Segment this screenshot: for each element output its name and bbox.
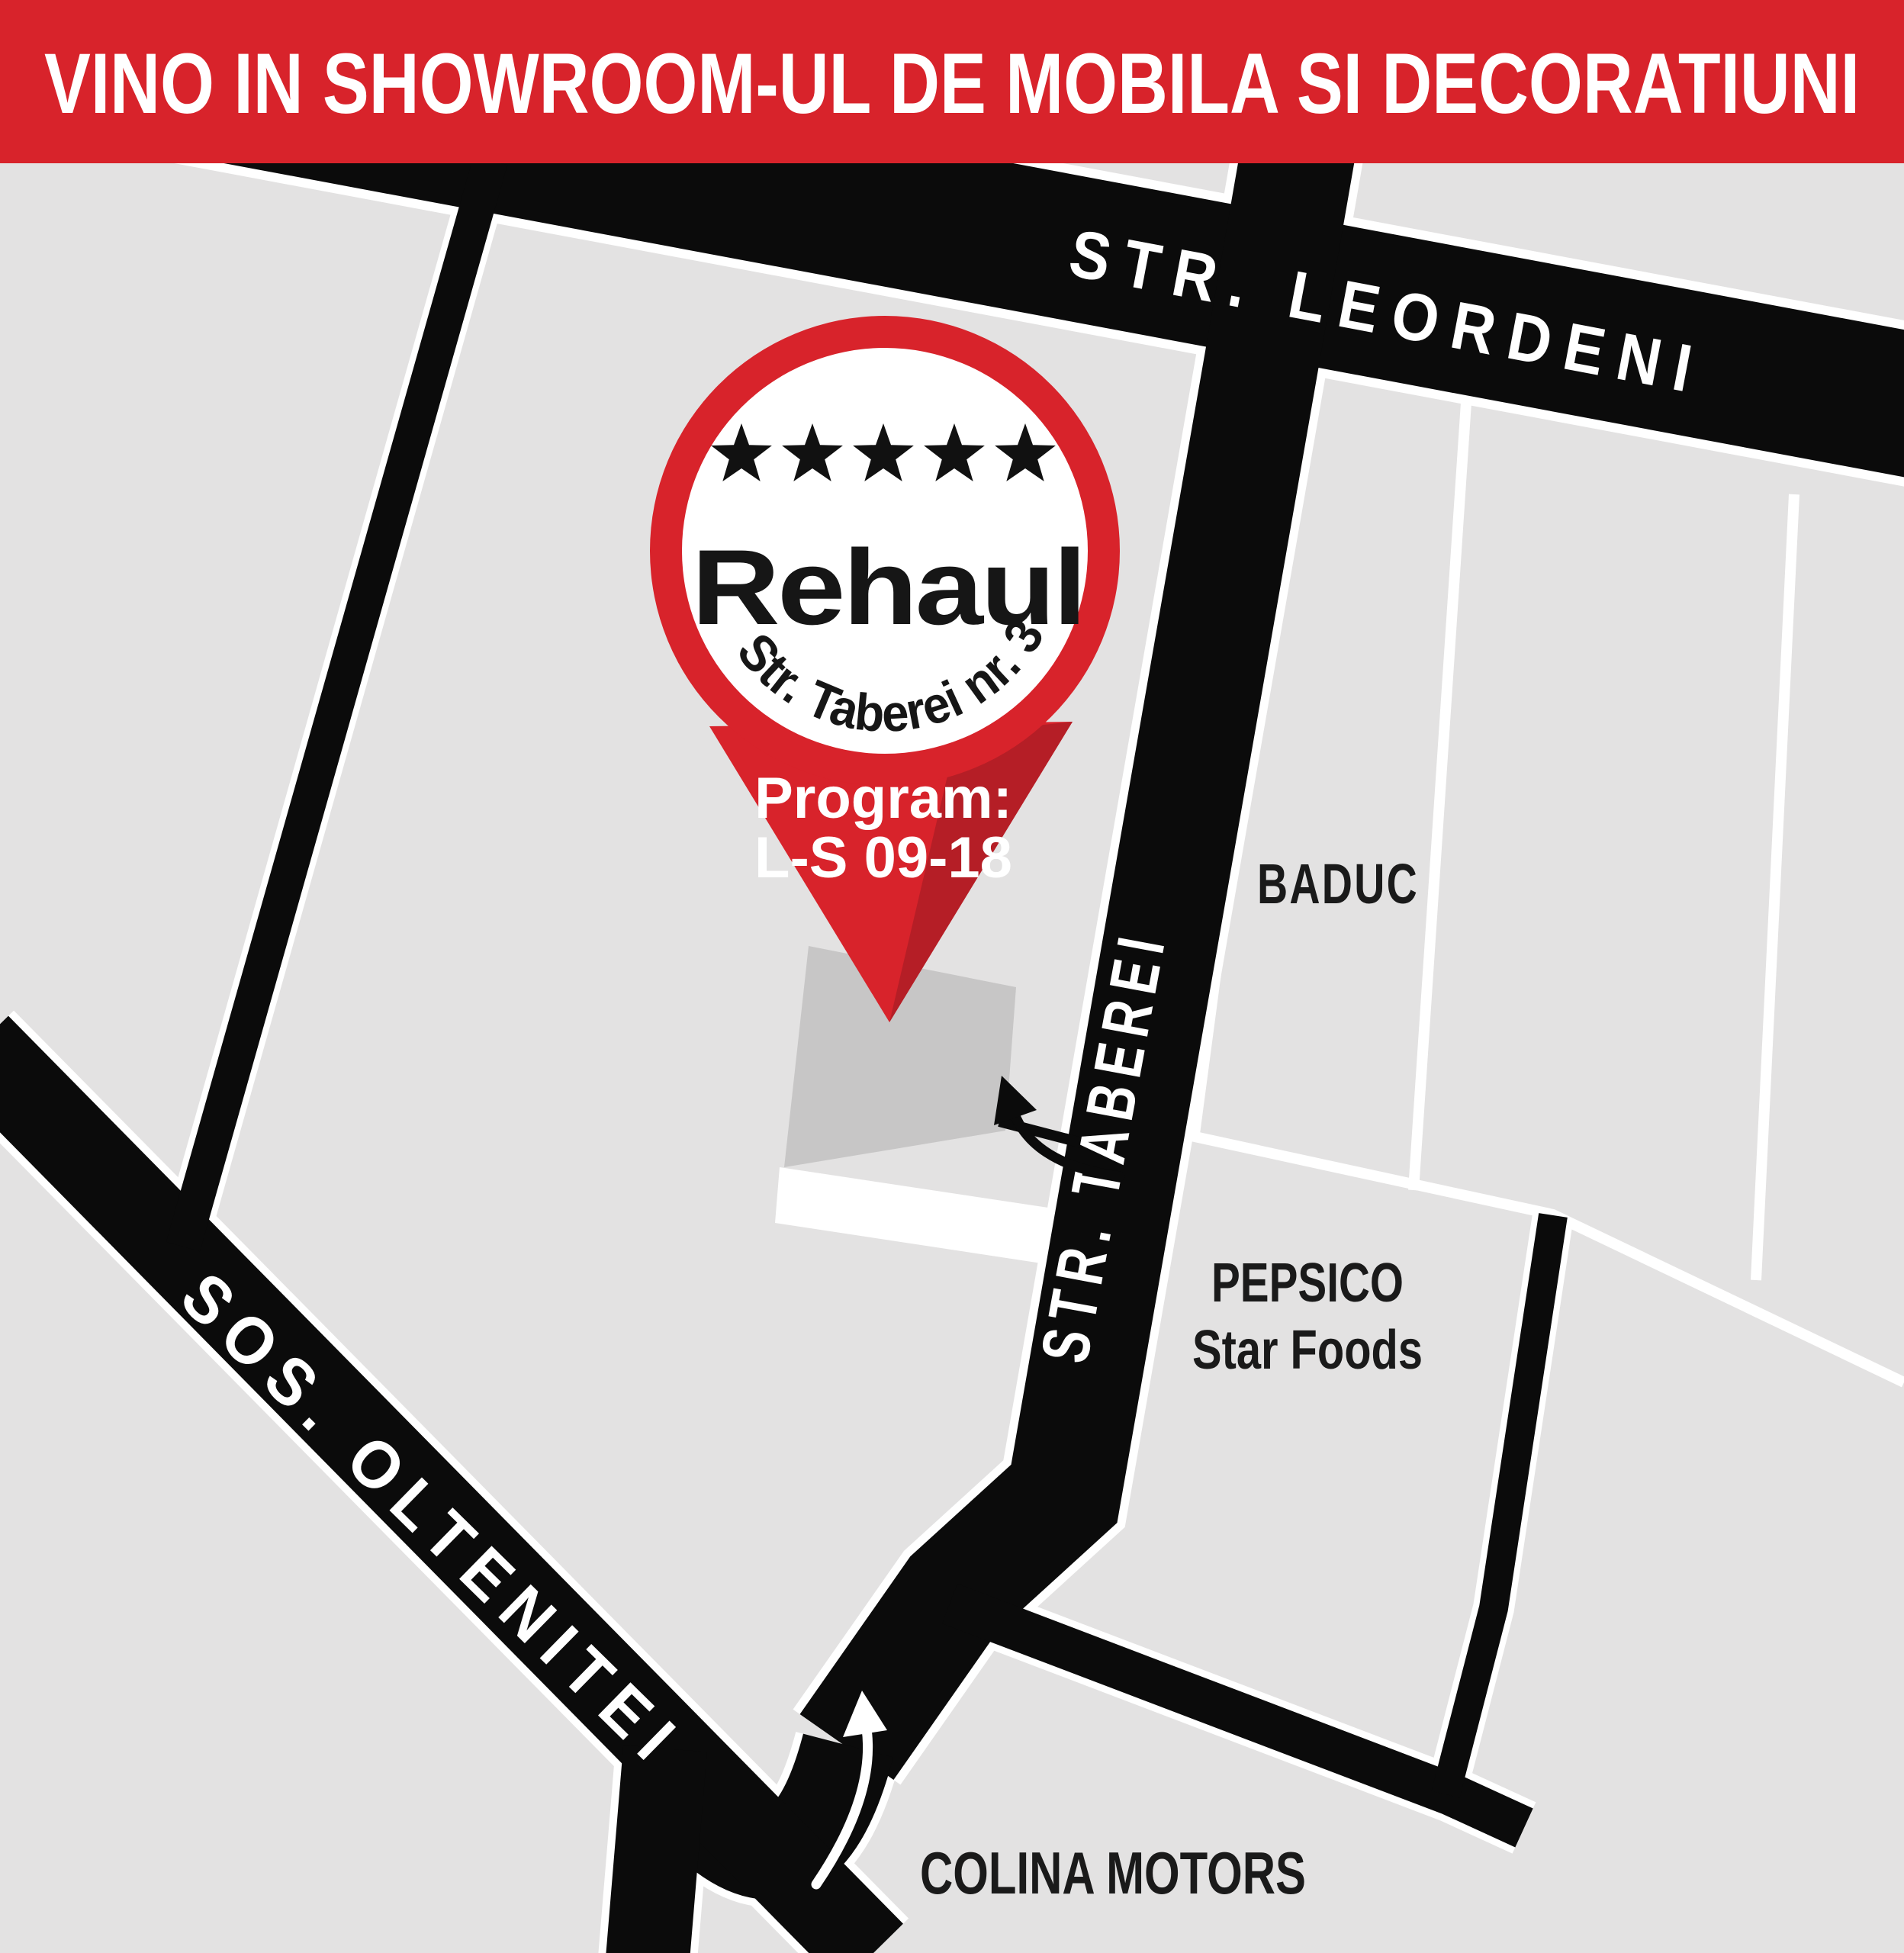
road-south-leg (647, 1749, 665, 1953)
place-label-baduc: BADUC (1257, 852, 1419, 915)
schedule-label: Program: (754, 766, 1012, 831)
banner-headline: VINO IN SHOWROOM-UL DE MOBILA SI DECORAT… (44, 36, 1860, 131)
place-label-pepsico: PEPSICO (1211, 1253, 1404, 1314)
place-label-star-foods: Star Foods (1192, 1320, 1423, 1381)
showroom-map: STR. LEORDENI SOS. OLTENITEI STR. TABERE… (0, 0, 1904, 1953)
schedule-hours: L-S 09-18 (754, 825, 1012, 890)
place-label-colina-motors: COLINA MOTORS (920, 1839, 1306, 1906)
